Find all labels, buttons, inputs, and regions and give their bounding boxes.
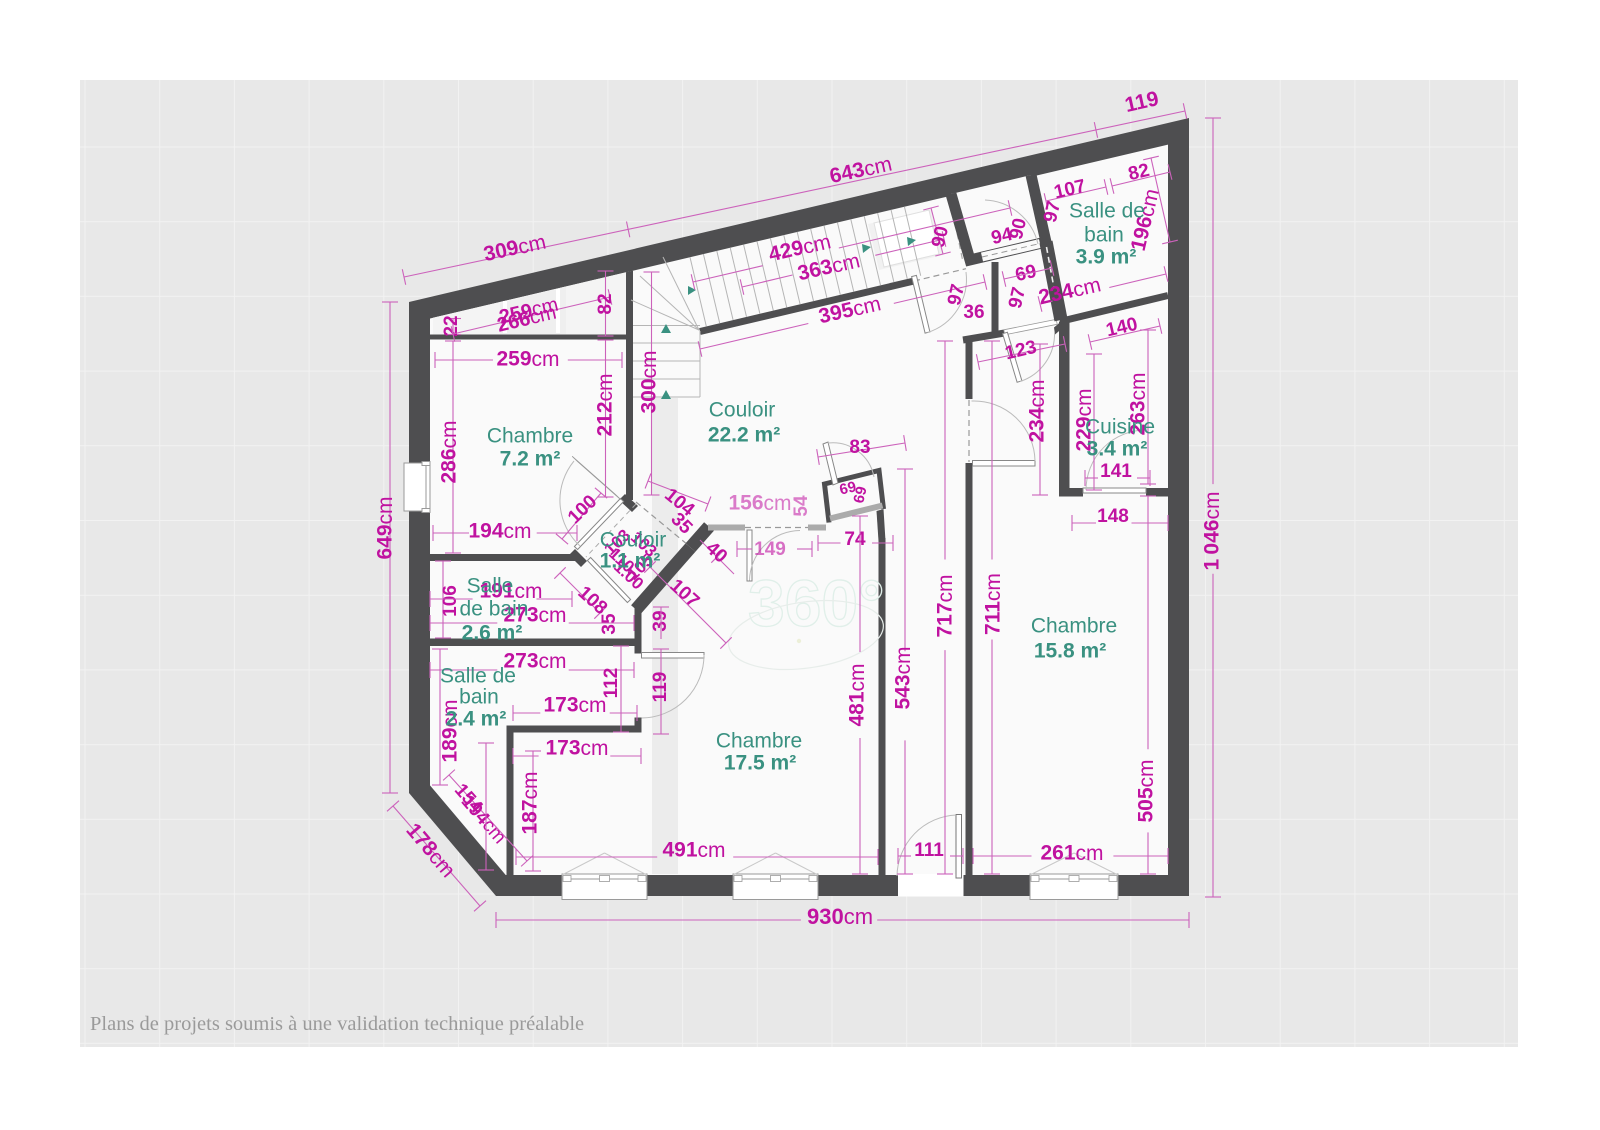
svg-text:141: 141 (1100, 461, 1132, 482)
svg-text:82: 82 (595, 293, 616, 314)
svg-text:194cm: 194cm (468, 520, 531, 543)
svg-text:74: 74 (844, 529, 866, 550)
svg-text:Couloir: Couloir (600, 529, 667, 552)
svg-text:bain: bain (1084, 224, 1124, 247)
svg-text:54: 54 (791, 495, 812, 517)
svg-text:234cm: 234cm (1026, 379, 1049, 442)
svg-text:Cuisine: Cuisine (1085, 416, 1155, 439)
svg-text:173cm: 173cm (543, 694, 606, 717)
svg-text:717cm: 717cm (934, 574, 957, 637)
svg-text:15.8 m²: 15.8 m² (1034, 640, 1106, 663)
svg-text:3.4 m²: 3.4 m² (1087, 438, 1148, 461)
svg-text:1.1 m²: 1.1 m² (600, 550, 661, 573)
svg-text:1 046cm: 1 046cm (1201, 492, 1224, 571)
svg-text:930cm: 930cm (807, 904, 873, 929)
svg-text:300cm: 300cm (638, 350, 661, 413)
svg-text:106: 106 (440, 585, 461, 617)
svg-text:148: 148 (1097, 506, 1129, 527)
svg-text:711cm: 711cm (982, 573, 1005, 635)
svg-text:bain: bain (459, 686, 499, 709)
svg-text:259cm: 259cm (496, 348, 559, 371)
svg-text:Salle: Salle (467, 575, 514, 598)
svg-text:187cm: 187cm (519, 771, 542, 834)
svg-text:Chambre: Chambre (1031, 615, 1117, 638)
svg-text:111: 111 (914, 840, 944, 861)
svg-text:649cm: 649cm (374, 496, 397, 559)
svg-text:36: 36 (963, 302, 984, 323)
svg-text:286cm: 286cm (438, 420, 461, 483)
svg-text:22.2 m²: 22.2 m² (708, 424, 780, 447)
svg-text:35: 35 (599, 613, 620, 635)
svg-text:3.9 m²: 3.9 m² (1076, 246, 1137, 269)
svg-text:261cm: 261cm (1040, 842, 1103, 865)
svg-text:7.2 m²: 7.2 m² (500, 448, 561, 471)
svg-text:Plans de projets soumis à une: Plans de projets soumis à une validation… (90, 1013, 584, 1035)
svg-text:2.6 m²: 2.6 m² (462, 622, 523, 645)
svg-text:83: 83 (849, 437, 870, 458)
svg-text:Couloir: Couloir (709, 399, 776, 422)
svg-text:156cm: 156cm (728, 492, 791, 515)
svg-text:2.4 m²: 2.4 m² (446, 708, 507, 731)
svg-text:543cm: 543cm (892, 646, 915, 709)
svg-text:149: 149 (754, 539, 786, 560)
svg-text:de bain: de bain (460, 598, 529, 621)
svg-text:212cm: 212cm (594, 373, 617, 436)
svg-text:360°: 360° (748, 566, 885, 640)
svg-text:491cm: 491cm (662, 839, 725, 862)
svg-text:17.5 m²: 17.5 m² (724, 752, 796, 775)
svg-text:Chambre: Chambre (716, 730, 802, 753)
svg-text:481cm: 481cm (846, 663, 869, 726)
svg-text:Salle de: Salle de (440, 665, 516, 688)
svg-text:173cm: 173cm (545, 737, 608, 760)
svg-text:22: 22 (441, 315, 462, 336)
svg-text:Salle de: Salle de (1069, 200, 1145, 223)
svg-text:119: 119 (650, 672, 671, 703)
svg-text:Chambre: Chambre (487, 425, 573, 448)
svg-text:505cm: 505cm (1135, 759, 1158, 822)
